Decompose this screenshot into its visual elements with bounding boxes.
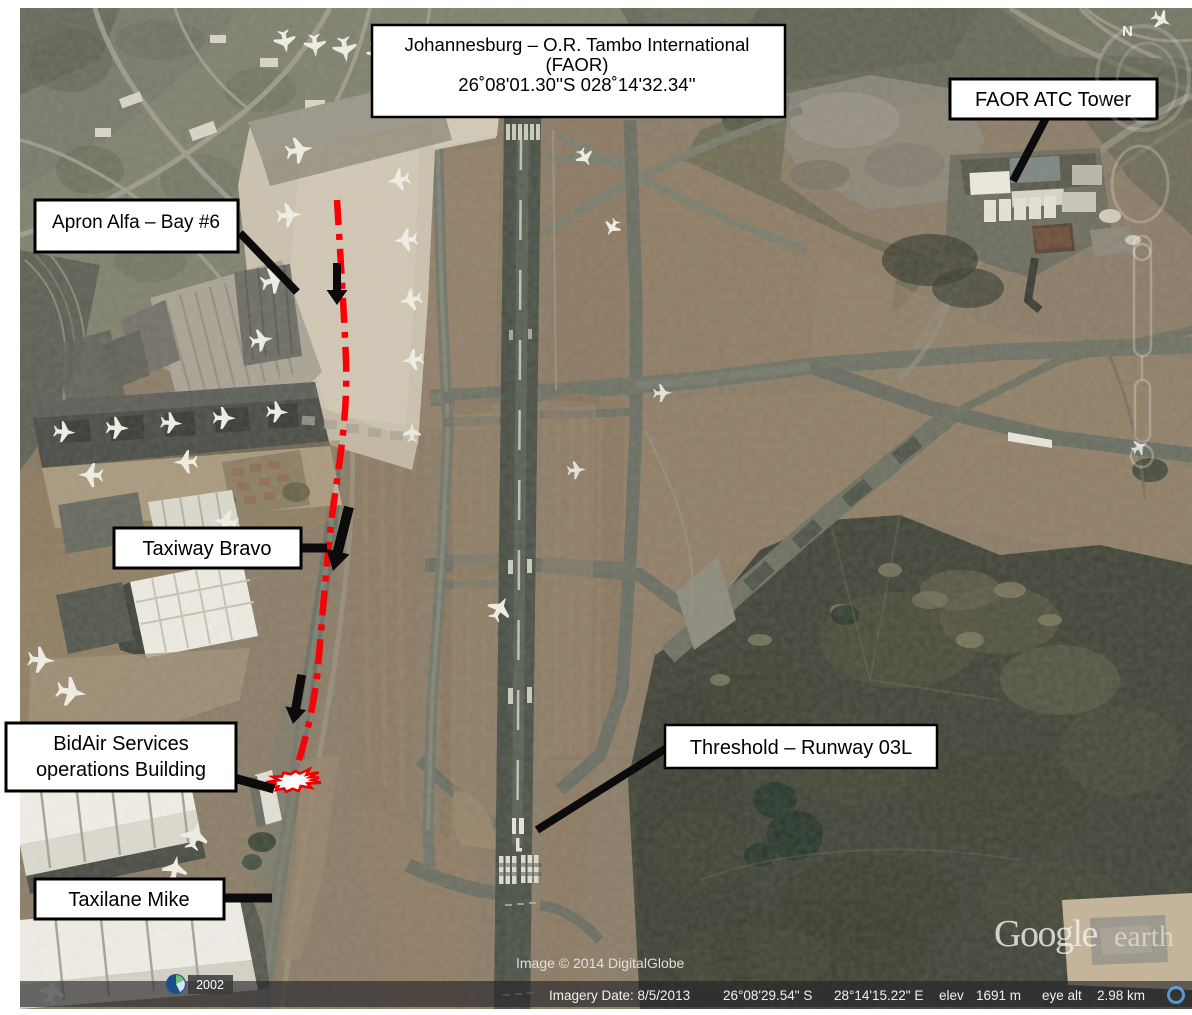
svg-text:26˚08ʹ01.30ʹʹS 028˚14ʹ32.34ʹʹ: 26˚08ʹ01.30ʹʹS 028˚14ʹ32.34ʹʹ	[458, 74, 695, 95]
svg-text:BidAir Services: BidAir Services	[53, 733, 189, 755]
svg-text:Apron Alfa – Bay #6: Apron Alfa – Bay #6	[52, 212, 220, 233]
svg-text:operations Building: operations Building	[36, 759, 206, 781]
svg-text:28°14'15.22" E: 28°14'15.22" E	[834, 988, 923, 1003]
svg-text:FAOR ATC Tower: FAOR ATC Tower	[975, 89, 1131, 111]
svg-text:N: N	[1122, 23, 1133, 40]
svg-text:Johannesburg – O.R. Tambo Inte: Johannesburg – O.R. Tambo International	[405, 34, 750, 55]
svg-text:(FAOR): (FAOR)	[545, 54, 608, 75]
svg-text:elev: elev	[939, 988, 964, 1003]
svg-text:Imagery Date: 8/5/2013: Imagery Date: 8/5/2013	[549, 988, 690, 1003]
svg-text:1691 m: 1691 m	[976, 988, 1021, 1003]
svg-text:26°08'29.54" S: 26°08'29.54" S	[723, 988, 812, 1003]
svg-text:Threshold – Runway 03L: Threshold – Runway 03L	[690, 737, 912, 759]
svg-text:Taxilane Mike: Taxilane Mike	[68, 889, 189, 911]
svg-text:Taxiway Bravo: Taxiway Bravo	[143, 538, 272, 560]
svg-text:2002: 2002	[196, 978, 224, 992]
svg-text:eye alt: eye alt	[1042, 988, 1082, 1003]
svg-text:Google: Google	[994, 913, 1098, 955]
svg-text:earth: earth	[1114, 920, 1174, 953]
svg-text:Image © 2014 DigitalGlobe: Image © 2014 DigitalGlobe	[516, 955, 685, 971]
svg-text:2.98 km: 2.98 km	[1097, 988, 1145, 1003]
